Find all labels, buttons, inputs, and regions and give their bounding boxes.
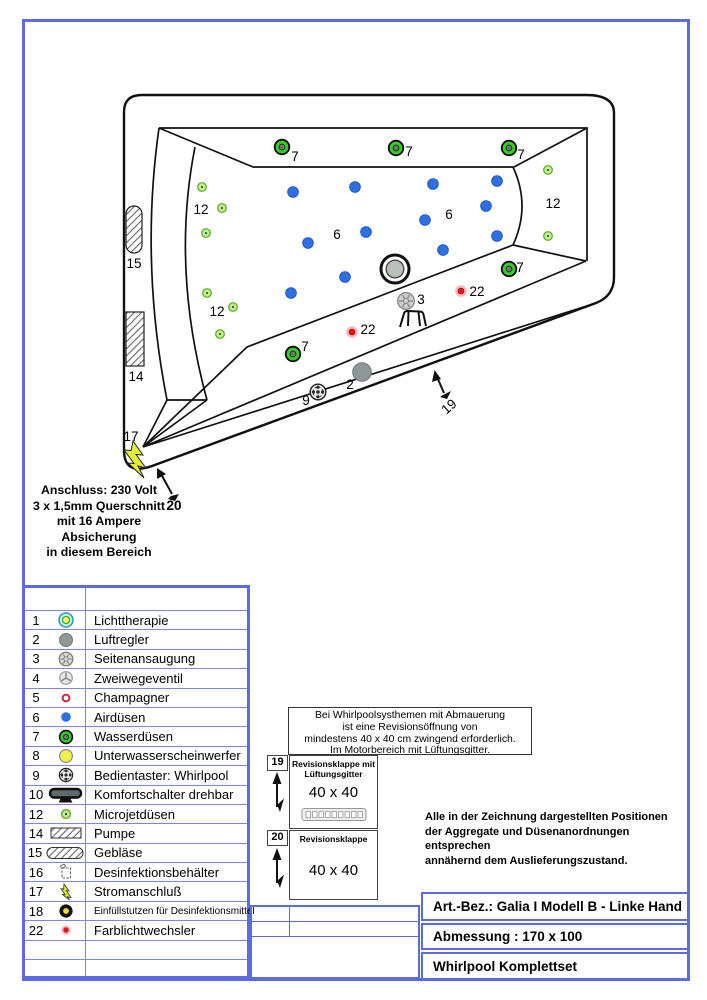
connection-note: Anschluss: 230 Volt3 x 1,5mm Querschnitt… [18, 483, 180, 561]
light-therapy-icon [57, 611, 75, 629]
legend-key-cell: 14 [25, 824, 86, 842]
legend-header-col1 [25, 588, 86, 610]
positions-note: Alle in der Zeichnung dargestellten Posi… [425, 810, 690, 868]
legend-key-cell: 8 [25, 747, 86, 765]
air-jet [420, 215, 431, 226]
legend-number: 17 [25, 884, 47, 899]
tub-outer-shell [124, 95, 614, 469]
legend-row-7: 7 Wasserdüsen [25, 726, 247, 745]
arrow-19 [432, 370, 451, 399]
revision19-title: Revisionsklappe mit Lüftungsgitter [290, 759, 377, 779]
pump-icon [49, 825, 83, 841]
blower-icon [45, 845, 85, 861]
legend-label: Microjetdüsen [86, 807, 175, 822]
disinfect-container-icon [57, 863, 75, 881]
legend-label: Zweiwegeventil [86, 671, 183, 686]
microjet-icon [57, 805, 75, 823]
side-suction-icon [57, 650, 75, 668]
legend-key-cell: 2 [25, 630, 86, 648]
legend-number: 7 [25, 729, 47, 744]
connection-note-line: 3 x 1,5mm Querschnitt [18, 499, 180, 515]
revision19-arrow-icon [269, 771, 285, 817]
legend-row-4: 4 Zweiwegeventil [25, 668, 247, 687]
revision20-size: 40 x 40 [290, 862, 377, 879]
legend-icon-wrap [47, 631, 85, 649]
connection-note-line: Absicherung [18, 530, 180, 546]
legend-icon-wrap [47, 747, 85, 765]
diagram-label-22: 22 [469, 284, 484, 299]
legend-key-cell: 3 [25, 650, 86, 668]
air-jet [492, 231, 503, 242]
legend-key-cell: 6 [25, 708, 86, 726]
continuation-row [252, 922, 418, 937]
diagram-label-6: 6 [445, 207, 453, 222]
legend-icon-wrap [47, 825, 85, 841]
legend-key-cell: 9 [25, 766, 86, 784]
air-regulator [353, 363, 372, 382]
microjet [218, 204, 227, 213]
legend-number: 10 [25, 787, 47, 802]
legend-label: Seitenansaugung [86, 651, 195, 666]
legend-label: Bedientaster: Whirlpool [86, 768, 228, 783]
legend-label: Champagner [86, 690, 169, 705]
color-light-jet [346, 326, 358, 338]
positions-note-line: annähernd dem Auslieferungszustand. [425, 854, 690, 869]
revision19-box: Revisionsklappe mit Lüftungsgitter 40 x … [289, 755, 378, 829]
legend-key-cell: 22 [25, 921, 86, 939]
legend-number: 2 [25, 632, 47, 647]
drain [381, 255, 409, 283]
diagram-label-7: 7 [516, 260, 524, 275]
revision19-size: 40 x 40 [290, 784, 377, 801]
legend-label: Pumpe [86, 826, 135, 841]
legend-row-2: 2 Luftregler [25, 629, 247, 648]
legend-icon-wrap [47, 786, 85, 804]
legend-table: 1 Lichttherapie 2 Luftregler 3 Seitenans… [22, 585, 250, 979]
legend-label: Luftregler [86, 632, 149, 647]
legend-number: 3 [25, 651, 47, 666]
microjet [229, 303, 238, 312]
legend-icon-wrap [47, 883, 85, 901]
comfort-switch-icon [48, 786, 84, 804]
diagram-label-12: 12 [193, 202, 208, 217]
diagram-label-7: 7 [291, 149, 299, 164]
microjet [198, 183, 207, 192]
legend-label: Airdüsen [86, 710, 145, 725]
legend-empty-row [25, 959, 247, 976]
legend-icon-wrap [47, 805, 85, 823]
color-light-jet [455, 285, 467, 297]
air-jet-icon [57, 708, 75, 726]
microjet [544, 166, 553, 175]
legend-label: Einfüllstutzen für Desinfektionsmittel [86, 906, 255, 917]
legend-label: Gebläse [86, 845, 142, 860]
legend-label: Farblichtwechsler [86, 923, 195, 938]
legend-icon-wrap [47, 766, 85, 784]
diagram-label-15: 15 [126, 256, 141, 271]
microjet [203, 289, 212, 298]
legend-row-3: 3 Seitenansaugung [25, 649, 247, 668]
legend-label: Unterwasserscheinwerfer [86, 748, 241, 763]
water-jet [502, 141, 517, 156]
diagram-label-17: 17 [123, 429, 138, 444]
legend-key-cell: 1 [25, 611, 86, 629]
legend-number: 14 [25, 826, 47, 841]
connection-note-line: in diesem Bereich [18, 545, 180, 561]
title-block-set: Whirlpool Komplettset [421, 952, 689, 980]
wall-note-line: Bei Whirlpoolsysthemen mit Abmauerung [289, 710, 531, 722]
legend-number: 12 [25, 807, 47, 822]
air-jet [340, 272, 351, 283]
legend-icon-wrap [47, 669, 85, 687]
blower-icon [126, 206, 142, 253]
legend-row-10: 10 Komfortschalter drehbar [25, 785, 247, 804]
legend-icon-wrap [47, 902, 85, 920]
legend-icon-wrap [47, 689, 85, 707]
water-jet [286, 347, 301, 362]
air-jet [303, 238, 314, 249]
legend-key-cell: 4 [25, 669, 86, 687]
legend-row-18: 18 Einfüllstutzen für Desinfektionsmitte… [25, 901, 247, 920]
legend-icon-wrap [47, 728, 85, 746]
control-button [310, 384, 326, 400]
champagne-icon [57, 689, 75, 707]
air-jet [350, 182, 361, 193]
air-regulator-icon [57, 631, 75, 649]
air-jet [288, 187, 299, 198]
underwater-light-icon [57, 747, 75, 765]
water-jet [502, 262, 517, 277]
legend-icon-wrap [47, 863, 85, 881]
wall-note-line: ist eine Revisionsöffnung von [289, 722, 531, 734]
microjet [202, 229, 211, 238]
legend-empty-row [25, 940, 247, 959]
title-block-dimensions: Abmessung : 170 x 100 [421, 923, 689, 950]
water-jet-icon [57, 728, 75, 746]
revision20-box: Revisionsklappe 40 x 40 [289, 830, 378, 900]
diagram-label-2: 2 [346, 377, 354, 392]
two-way-valve-icon [57, 669, 75, 687]
legend-row-12: 12 Microjetdüsen [25, 804, 247, 823]
legend-icon-wrap [47, 611, 85, 629]
diagram-label-14: 14 [128, 369, 144, 384]
legend-row-15: 15 Gebläse [25, 843, 247, 862]
color-light-icon [57, 921, 75, 939]
continuation-empty-cell [252, 937, 418, 977]
legend-label: Stromanschluß [86, 884, 181, 899]
air-jet [492, 176, 503, 187]
legend-label: Desinfektionsbehälter [86, 865, 219, 880]
side-suction [398, 293, 415, 310]
diagram-label-22: 22 [360, 322, 375, 337]
legend-key-cell: 12 [25, 805, 86, 823]
legend-key-cell: 16 [25, 863, 86, 881]
legend-row-22: 22 Farblichtwechsler [25, 920, 247, 939]
legend-row-9: 9 Bedientaster: Whirlpool [25, 765, 247, 784]
air-jet [428, 179, 439, 190]
legend-row-14: 14 Pumpe [25, 823, 247, 842]
legend-icon-wrap [47, 921, 85, 939]
revision20-arrow-icon [269, 847, 285, 893]
legend-number: 15 [25, 845, 45, 860]
wall-note-box: Bei Whirlpoolsysthemen mit Abmauerungist… [288, 707, 532, 755]
diagram-label-3: 3 [417, 292, 425, 307]
diagram-label-19: 19 [438, 396, 459, 417]
legend-number: 22 [25, 923, 47, 938]
air-jet [286, 288, 297, 299]
legend-key-cell: 15 [25, 844, 86, 862]
vent-grille-icon [301, 807, 367, 822]
legend-row-5: 5 Champagner [25, 688, 247, 707]
pump-icon [126, 312, 144, 366]
connection-note-line: mit 16 Ampere [18, 514, 180, 530]
diagram-label-7: 7 [517, 147, 525, 162]
legend-number: 18 [25, 904, 47, 919]
diagram-label-12: 12 [209, 304, 224, 319]
legend-number: 9 [25, 768, 47, 783]
continuation-row [252, 907, 418, 922]
legend-row-8: 8 Unterwasserscheinwerfer [25, 746, 247, 765]
power-icon [57, 883, 75, 901]
legend-key-cell: 18 [25, 902, 86, 920]
legend-number: 5 [25, 690, 47, 705]
legend-number: 1 [25, 613, 47, 628]
legend-icon-wrap [47, 708, 85, 726]
wall-note-line: mindestens 40 x 40 cm zwingend erforderl… [289, 734, 531, 746]
legend-row-17: 17 Stromanschluß [25, 881, 247, 900]
diagram-label-7: 7 [301, 339, 309, 354]
connection-note-line: Anschluss: 230 Volt [18, 483, 180, 499]
legend-row-16: 16 Desinfektionsbehälter [25, 862, 247, 881]
valve-handle-icon [400, 311, 426, 327]
legend-key-cell: 17 [25, 882, 86, 900]
legend-label: Lichttherapie [86, 613, 168, 628]
diagram-label-6: 6 [333, 227, 341, 242]
legend-key-cell: 7 [25, 727, 86, 745]
legend-number: 4 [25, 671, 47, 686]
air-jet [361, 227, 372, 238]
legend-number: 6 [25, 710, 47, 725]
legend-number: 8 [25, 748, 47, 763]
revision20-title: Revisionsklappe [290, 834, 377, 844]
positions-note-line: Alle in der Zeichnung dargestellten Posi… [425, 810, 690, 825]
filler-neck-icon [57, 902, 75, 920]
title-block-article: Art.-Bez.: Galia I Modell B - Linke Hand [421, 892, 689, 921]
legend-row-1: 1 Lichttherapie [25, 610, 247, 629]
revision20-number: 20 [267, 830, 288, 846]
diagram-label-12: 12 [545, 196, 560, 211]
legend-label: Komfortschalter drehbar [86, 787, 233, 802]
continuation-table [250, 905, 420, 979]
microjet [216, 330, 225, 339]
legend-header-row [25, 588, 247, 610]
legend-number: 16 [25, 865, 47, 880]
diagram-label-9: 9 [302, 393, 310, 408]
legend-key-cell: 10 [25, 786, 86, 804]
diagram-label-7: 7 [405, 144, 413, 159]
legend-key-cell: 5 [25, 689, 86, 707]
legend-label: Wasserdüsen [86, 729, 173, 744]
microjet [544, 232, 553, 241]
air-jet [438, 245, 449, 256]
positions-note-line: der Aggregate und Düsenanordnungen entsp… [425, 825, 690, 854]
water-jet [275, 140, 290, 155]
legend-icon-wrap [45, 845, 85, 861]
revision19-number: 19 [267, 755, 288, 771]
water-jet [389, 141, 404, 156]
air-jet [481, 201, 492, 212]
legend-icon-wrap [47, 650, 85, 668]
legend-row-6: 6 Airdüsen [25, 707, 247, 726]
control-button-icon [57, 766, 75, 784]
